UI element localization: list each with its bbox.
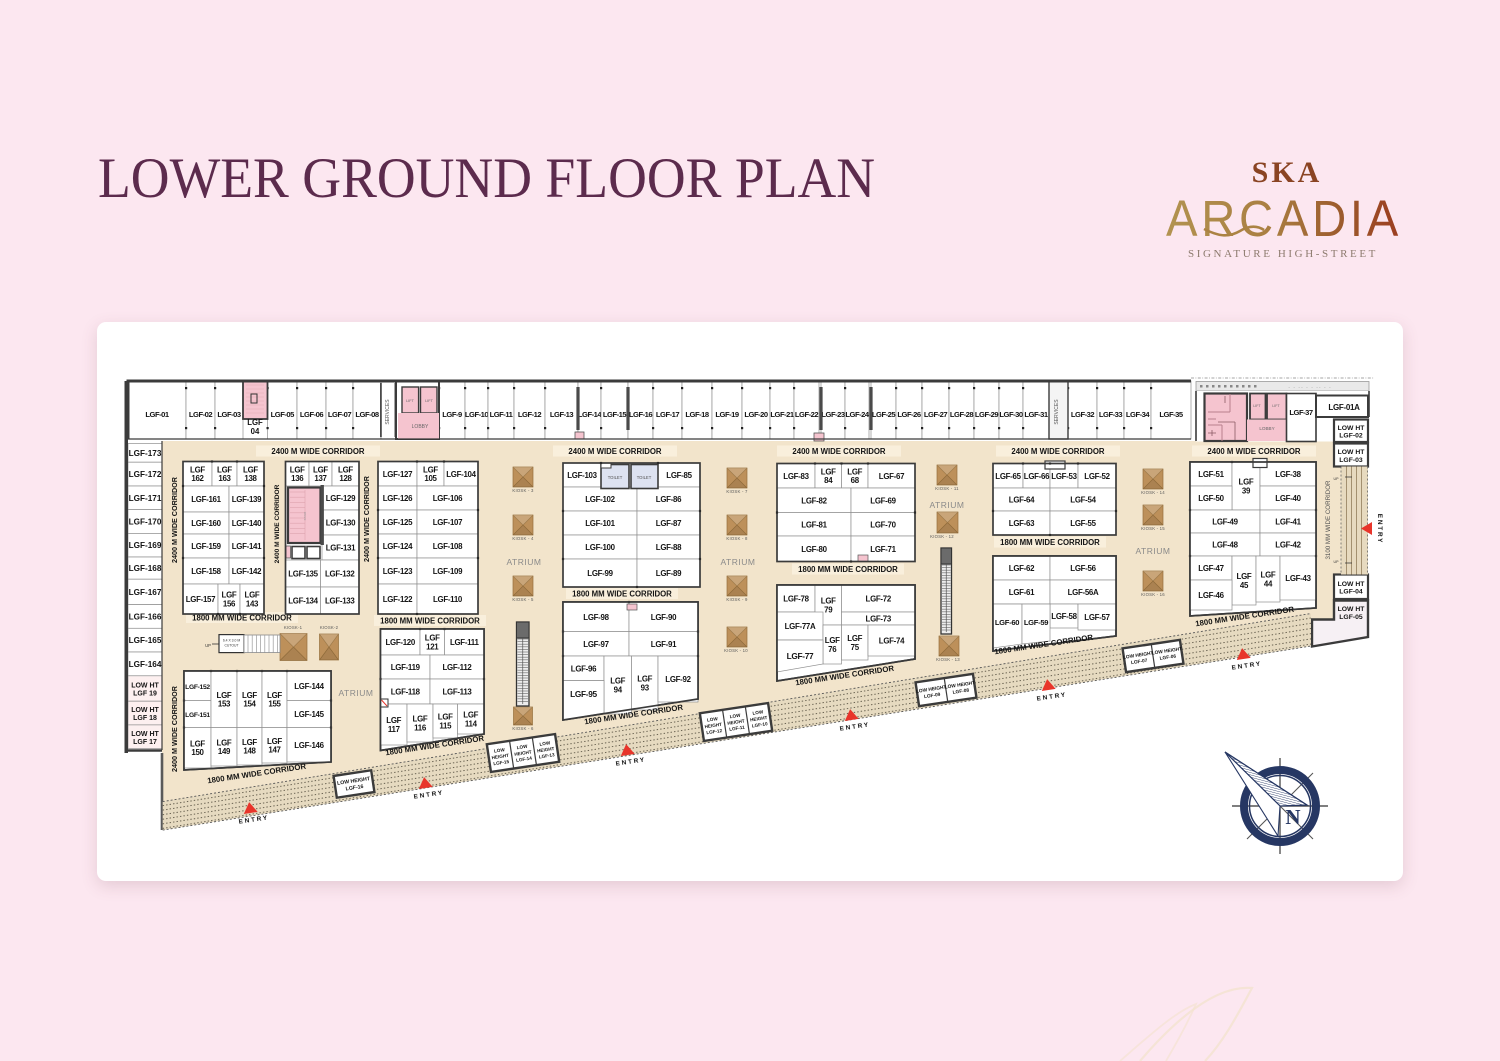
svg-text:LGF-32: LGF-32 bbox=[1071, 410, 1094, 419]
svg-text:136: 136 bbox=[291, 474, 304, 483]
svg-text:LGF-73: LGF-73 bbox=[866, 615, 892, 624]
svg-text:LGF-157: LGF-157 bbox=[186, 595, 216, 604]
svg-text:LGF-171: LGF-171 bbox=[129, 494, 162, 503]
svg-text:ENTRY: ENTRY bbox=[413, 789, 444, 800]
svg-text:LGF: LGF bbox=[847, 467, 862, 476]
svg-text:LGF-03: LGF-03 bbox=[1339, 457, 1363, 464]
svg-text:LGF-151: LGF-151 bbox=[185, 712, 210, 719]
svg-text:LGF: LGF bbox=[338, 465, 353, 474]
svg-text:LGF-60: LGF-60 bbox=[995, 618, 1019, 627]
svg-text:LGF-103: LGF-103 bbox=[567, 471, 597, 480]
svg-text:ATRIUM: ATRIUM bbox=[507, 557, 542, 567]
svg-text:LGF-9: LGF-9 bbox=[442, 410, 462, 419]
svg-text:LGF-97: LGF-97 bbox=[583, 640, 609, 649]
svg-text:LGF-51: LGF-51 bbox=[1198, 470, 1224, 479]
svg-text:LGF-135: LGF-135 bbox=[288, 570, 318, 579]
svg-text:LGF-141: LGF-141 bbox=[232, 542, 262, 551]
svg-text:LGF-06: LGF-06 bbox=[300, 410, 323, 419]
svg-text:LGF-24: LGF-24 bbox=[845, 410, 869, 419]
svg-text:UP: UP bbox=[1334, 477, 1340, 481]
svg-text:2400 M WIDE CORRIDOR: 2400 M WIDE CORRIDOR bbox=[170, 476, 179, 563]
svg-text:LGF-152: LGF-152 bbox=[185, 684, 210, 691]
svg-text:LGF-04: LGF-04 bbox=[1339, 589, 1363, 596]
svg-text:LIFT: LIFT bbox=[425, 399, 433, 403]
svg-text:76: 76 bbox=[828, 645, 837, 654]
svg-text:LGF-67: LGF-67 bbox=[879, 472, 905, 481]
svg-text:LGF-43: LGF-43 bbox=[1285, 574, 1311, 583]
svg-text:LGF-89: LGF-89 bbox=[656, 569, 682, 578]
svg-text:LGF-63: LGF-63 bbox=[1009, 519, 1035, 528]
svg-text:LOW HT: LOW HT bbox=[131, 683, 159, 690]
svg-text:LGF: LGF bbox=[425, 634, 440, 643]
svg-text:LGF-166: LGF-166 bbox=[129, 612, 162, 621]
svg-text:137: 137 bbox=[314, 474, 327, 483]
svg-text:2400 M WIDE CORRIDOR: 2400 M WIDE CORRIDOR bbox=[362, 475, 371, 562]
svg-text:LGF-123: LGF-123 bbox=[383, 567, 413, 576]
svg-text:ENTRY: ENTRY bbox=[839, 721, 870, 732]
svg-text:LGF 17: LGF 17 bbox=[133, 739, 157, 746]
svg-text:LGF-40: LGF-40 bbox=[1275, 494, 1301, 503]
svg-text:LGF-10: LGF-10 bbox=[465, 410, 488, 419]
svg-text:LGF-164: LGF-164 bbox=[129, 660, 162, 669]
svg-text:LOW HT: LOW HT bbox=[1338, 449, 1366, 456]
svg-text:LGF-170: LGF-170 bbox=[129, 518, 162, 527]
svg-text:ATRIUM: ATRIUM bbox=[930, 500, 965, 510]
svg-text:LGF-08: LGF-08 bbox=[355, 410, 378, 419]
svg-text:LGF-122: LGF-122 bbox=[383, 595, 413, 604]
svg-text:04: 04 bbox=[251, 427, 260, 436]
svg-text:LGF-11: LGF-11 bbox=[490, 410, 514, 419]
svg-text:LGF-134: LGF-134 bbox=[288, 597, 318, 606]
svg-text:2400 M WIDE CORRIDOR: 2400 M WIDE CORRIDOR bbox=[271, 447, 365, 456]
svg-text:LGF-42: LGF-42 bbox=[1275, 541, 1301, 550]
svg-text:LGF-16: LGF-16 bbox=[629, 410, 652, 419]
svg-text:LGF-132: LGF-132 bbox=[325, 570, 355, 579]
svg-text:KIOSK - 6: KIOSK - 6 bbox=[512, 726, 534, 731]
svg-text:LGF-77: LGF-77 bbox=[787, 651, 814, 661]
svg-text:LGF-52: LGF-52 bbox=[1084, 472, 1110, 481]
svg-text:LGF: LGF bbox=[217, 738, 232, 747]
svg-text:LGF-172: LGF-172 bbox=[129, 470, 162, 479]
svg-text:LGF-146: LGF-146 bbox=[294, 741, 324, 750]
svg-text:121: 121 bbox=[426, 642, 439, 651]
svg-text:KIOSK - 3: KIOSK - 3 bbox=[512, 488, 534, 493]
svg-text:LGF 19: LGF 19 bbox=[133, 691, 157, 698]
svg-text:156: 156 bbox=[223, 599, 236, 608]
svg-text:LGF-46: LGF-46 bbox=[1198, 591, 1224, 600]
svg-text:LGF: LGF bbox=[610, 677, 625, 686]
svg-text:LGF-144: LGF-144 bbox=[294, 682, 324, 691]
svg-text:UP: UP bbox=[205, 643, 211, 648]
svg-text:LGF-110: LGF-110 bbox=[433, 595, 463, 604]
svg-text:KIOSK - 12: KIOSK - 12 bbox=[930, 534, 954, 539]
svg-text:LGF-61: LGF-61 bbox=[1009, 588, 1035, 597]
svg-text:KIOSK - 9: KIOSK - 9 bbox=[726, 597, 748, 602]
svg-text:LGF-74: LGF-74 bbox=[879, 637, 905, 646]
svg-text:ATRIUM: ATRIUM bbox=[339, 688, 374, 698]
svg-text:LGF: LGF bbox=[438, 713, 453, 722]
svg-text:LGF-26: LGF-26 bbox=[897, 410, 920, 419]
svg-text:LGF-129: LGF-129 bbox=[326, 494, 356, 503]
svg-text:KIOSK - 15: KIOSK - 15 bbox=[1141, 526, 1165, 531]
svg-text:LGF-98: LGF-98 bbox=[583, 613, 609, 622]
svg-text:LGF-92: LGF-92 bbox=[665, 675, 691, 684]
svg-text:LIFT: LIFT bbox=[1253, 404, 1261, 408]
svg-text:LGF: LGF bbox=[1239, 478, 1254, 487]
svg-text:147: 147 bbox=[268, 746, 281, 755]
svg-text:LGF: LGF bbox=[242, 691, 257, 700]
svg-text:2400 M WIDE CORRIDOR: 2400 M WIDE CORRIDOR bbox=[792, 447, 886, 456]
svg-text:STAIR: STAIR bbox=[303, 511, 307, 520]
svg-text:LGF-81: LGF-81 bbox=[801, 520, 827, 529]
svg-text:44: 44 bbox=[1264, 579, 1273, 588]
svg-text:LGF-112: LGF-112 bbox=[442, 663, 472, 672]
svg-text:LGF-82: LGF-82 bbox=[801, 496, 827, 505]
svg-text:LGF-34: LGF-34 bbox=[1126, 410, 1150, 419]
svg-text:LGF-23: LGF-23 bbox=[821, 410, 844, 419]
svg-text:KIOSK - 8: KIOSK - 8 bbox=[726, 536, 748, 541]
svg-text:ENTRY: ENTRY bbox=[1376, 514, 1383, 544]
svg-text:LGF-160: LGF-160 bbox=[191, 519, 221, 528]
svg-text:LGF-86: LGF-86 bbox=[656, 495, 682, 504]
svg-text:LGF-50: LGF-50 bbox=[1198, 494, 1224, 503]
svg-text:LOW HT: LOW HT bbox=[1338, 425, 1366, 432]
svg-text:LGF-37: LGF-37 bbox=[1289, 408, 1312, 417]
svg-text:LGF: LGF bbox=[825, 636, 840, 645]
svg-text:LGF-47: LGF-47 bbox=[1198, 564, 1224, 573]
svg-text:LGF-70: LGF-70 bbox=[870, 520, 896, 529]
svg-text:LIFT: LIFT bbox=[406, 399, 414, 403]
svg-text:LGF-158: LGF-158 bbox=[191, 567, 221, 576]
svg-text:128: 128 bbox=[339, 474, 352, 483]
svg-text:39: 39 bbox=[1242, 486, 1251, 495]
svg-text:LGF-62: LGF-62 bbox=[1009, 564, 1035, 573]
svg-text:94: 94 bbox=[614, 685, 623, 694]
svg-text:LGF-03: LGF-03 bbox=[217, 410, 240, 419]
svg-text:KIOSK - 10: KIOSK - 10 bbox=[724, 648, 748, 653]
svg-text:LGF-168: LGF-168 bbox=[129, 564, 162, 573]
svg-text:LGF-35: LGF-35 bbox=[1159, 410, 1183, 419]
svg-text:LGF-53: LGF-53 bbox=[1051, 472, 1077, 481]
svg-text:93: 93 bbox=[641, 683, 650, 692]
svg-text:LGF-83: LGF-83 bbox=[783, 472, 809, 481]
svg-text:LGF-140: LGF-140 bbox=[232, 519, 262, 528]
svg-text:LGF: LGF bbox=[190, 739, 205, 748]
svg-text:143: 143 bbox=[246, 599, 259, 608]
svg-text:CUTOUT: CUTOUT bbox=[224, 644, 238, 648]
svg-text:LGF: LGF bbox=[245, 591, 260, 600]
svg-text:LGF-41: LGF-41 bbox=[1275, 518, 1301, 527]
svg-text:LGF-02: LGF-02 bbox=[189, 410, 212, 419]
svg-text:LGF-30: LGF-30 bbox=[999, 410, 1022, 419]
svg-text:114: 114 bbox=[465, 719, 478, 728]
svg-text:LIFT: LIFT bbox=[1272, 404, 1280, 408]
svg-text:LGF: LGF bbox=[637, 675, 652, 684]
svg-text:LGF-139: LGF-139 bbox=[232, 495, 262, 504]
svg-text:LGF-119: LGF-119 bbox=[391, 663, 421, 672]
svg-text:LGF-28: LGF-28 bbox=[950, 410, 973, 419]
svg-text:116: 116 bbox=[414, 723, 427, 732]
svg-text:LGF: LGF bbox=[313, 465, 328, 474]
svg-text:6.4 X 3.0 M: 6.4 X 3.0 M bbox=[223, 639, 241, 643]
svg-text:LGF-57: LGF-57 bbox=[1084, 613, 1110, 622]
svg-text:LOBBY: LOBBY bbox=[1259, 426, 1274, 431]
svg-text:KIOSK - 14: KIOSK - 14 bbox=[1141, 490, 1165, 495]
svg-text:LGF-120: LGF-120 bbox=[386, 638, 416, 647]
svg-text:LGF-101: LGF-101 bbox=[585, 519, 615, 528]
svg-text:ENTRY: ENTRY bbox=[1036, 691, 1067, 702]
svg-text:LGF: LGF bbox=[386, 716, 401, 725]
svg-text:LGF-99: LGF-99 bbox=[587, 569, 613, 578]
svg-text:LGF: LGF bbox=[821, 597, 836, 606]
svg-text:SERVICES: SERVICES bbox=[385, 399, 391, 425]
svg-text:SERVICES: SERVICES bbox=[1054, 399, 1060, 425]
svg-text:75: 75 bbox=[851, 643, 860, 652]
svg-text:2400 M WIDE CORRIDOR: 2400 M WIDE CORRIDOR bbox=[170, 685, 179, 772]
svg-text:LGF-80: LGF-80 bbox=[801, 545, 827, 554]
svg-text:1800 MM WIDE CORRIDOR: 1800 MM WIDE CORRIDOR bbox=[1000, 538, 1100, 547]
svg-text:1800 MM WIDE CORRIDOR: 1800 MM WIDE CORRIDOR bbox=[572, 590, 672, 599]
svg-text:LGF: LGF bbox=[423, 465, 438, 474]
svg-text:LGF-78: LGF-78 bbox=[783, 595, 809, 604]
svg-text:KIOSK - 13: KIOSK - 13 bbox=[936, 657, 960, 662]
svg-text:150: 150 bbox=[191, 748, 204, 757]
svg-text:LOW HT: LOW HT bbox=[131, 707, 159, 714]
svg-text:LGF-165: LGF-165 bbox=[129, 636, 162, 645]
svg-text:LGF-108: LGF-108 bbox=[433, 542, 463, 551]
svg-text:LGF-19: LGF-19 bbox=[715, 410, 738, 419]
svg-text:LGF-100: LGF-100 bbox=[585, 543, 615, 552]
svg-text:LGF-107: LGF-107 bbox=[433, 518, 463, 527]
svg-text:LGF-58: LGF-58 bbox=[1051, 612, 1077, 621]
svg-text:LGF-118: LGF-118 bbox=[391, 688, 421, 697]
svg-text:LGF: LGF bbox=[247, 418, 263, 427]
svg-text:LGF-72: LGF-72 bbox=[866, 595, 892, 604]
svg-text:LGF: LGF bbox=[190, 465, 205, 474]
svg-text:45: 45 bbox=[1240, 581, 1249, 590]
svg-text:KIOSK-2: KIOSK-2 bbox=[320, 625, 339, 630]
svg-text:LGF-167: LGF-167 bbox=[129, 588, 162, 597]
svg-text:2400 M WIDE CORRIDOR: 2400 M WIDE CORRIDOR bbox=[568, 447, 662, 456]
svg-text:LGF-85: LGF-85 bbox=[666, 471, 692, 480]
svg-text:ATRIUM: ATRIUM bbox=[721, 557, 756, 567]
svg-text:LOW HT: LOW HT bbox=[131, 731, 159, 738]
svg-text:LGF: LGF bbox=[243, 465, 258, 474]
svg-text:LGF-69: LGF-69 bbox=[870, 496, 896, 505]
svg-text:LGF: LGF bbox=[847, 634, 862, 643]
svg-text:- - -- - - -- - -: - - -- - - -- - - bbox=[1288, 385, 1331, 391]
svg-text:162: 162 bbox=[191, 474, 204, 483]
svg-text:LGF-91: LGF-91 bbox=[651, 640, 677, 649]
svg-text:LGF-104: LGF-104 bbox=[446, 470, 476, 479]
svg-text:163: 163 bbox=[218, 474, 231, 483]
svg-text:ATRIUM: ATRIUM bbox=[1136, 546, 1171, 556]
svg-text:LGF-71: LGF-71 bbox=[870, 545, 896, 554]
svg-text:LGF-22: LGF-22 bbox=[795, 410, 818, 419]
svg-text:LGF-102: LGF-102 bbox=[585, 495, 615, 504]
svg-text:KIOSK-1: KIOSK-1 bbox=[284, 625, 303, 630]
svg-text:LGF-02: LGF-02 bbox=[1339, 433, 1363, 440]
svg-text:TOILET: TOILET bbox=[608, 475, 623, 480]
svg-text:84: 84 bbox=[824, 476, 833, 485]
svg-text:LGF-54: LGF-54 bbox=[1070, 496, 1096, 505]
svg-text:LGF: LGF bbox=[413, 715, 428, 724]
svg-text:LGF-48: LGF-48 bbox=[1212, 541, 1238, 550]
svg-text:LGF 18: LGF 18 bbox=[133, 715, 157, 722]
svg-text:LGF-142: LGF-142 bbox=[232, 567, 262, 576]
svg-text:ENTRY: ENTRY bbox=[1231, 660, 1262, 671]
svg-text:LGF: LGF bbox=[267, 737, 282, 746]
svg-text:LGF: LGF bbox=[1261, 571, 1276, 580]
svg-text:LOW HT: LOW HT bbox=[1338, 606, 1366, 613]
svg-text:LGF-145: LGF-145 bbox=[294, 710, 324, 719]
svg-text:138: 138 bbox=[244, 474, 257, 483]
svg-text:LGF-77A: LGF-77A bbox=[785, 622, 816, 631]
svg-text:LGF-21: LGF-21 bbox=[770, 410, 794, 419]
svg-text:105: 105 bbox=[424, 474, 437, 483]
svg-text:LGF: LGF bbox=[290, 465, 305, 474]
svg-text:LGF-113: LGF-113 bbox=[442, 688, 472, 697]
svg-text:LGF-125: LGF-125 bbox=[383, 518, 413, 527]
svg-text:149: 149 bbox=[218, 747, 231, 756]
svg-text:LGF-25: LGF-25 bbox=[872, 410, 896, 419]
svg-text:LGF-131: LGF-131 bbox=[326, 544, 356, 553]
svg-text:LGF-127: LGF-127 bbox=[383, 470, 413, 479]
svg-text:LGF-133: LGF-133 bbox=[325, 597, 355, 606]
svg-text:LGF-169: LGF-169 bbox=[129, 541, 162, 550]
svg-text:79: 79 bbox=[824, 605, 833, 614]
svg-text:LGF-07: LGF-07 bbox=[328, 410, 351, 419]
svg-text:LGF: LGF bbox=[242, 738, 257, 747]
svg-text:LGF-66: LGF-66 bbox=[1024, 472, 1050, 481]
svg-text:LGF-17: LGF-17 bbox=[656, 410, 679, 419]
svg-text:LGF-95: LGF-95 bbox=[570, 689, 597, 699]
svg-text:ENTRY: ENTRY bbox=[615, 756, 646, 767]
svg-text:LGF-01A: LGF-01A bbox=[1328, 403, 1360, 412]
svg-text:LGF-59: LGF-59 bbox=[1024, 618, 1048, 627]
svg-text:LGF-29: LGF-29 bbox=[975, 410, 998, 419]
svg-text:LGF: LGF bbox=[222, 591, 237, 600]
svg-text:148: 148 bbox=[243, 747, 256, 756]
svg-text:LGF-96: LGF-96 bbox=[571, 664, 597, 673]
svg-text:LGF: LGF bbox=[463, 711, 478, 720]
svg-text:153: 153 bbox=[218, 700, 231, 709]
svg-text:LGF: LGF bbox=[217, 465, 232, 474]
svg-text:LGF-124: LGF-124 bbox=[383, 542, 413, 551]
svg-text:115: 115 bbox=[439, 721, 452, 730]
svg-text:LGF: LGF bbox=[267, 691, 282, 700]
svg-text:2400 M WIDE CORRIDOR: 2400 M WIDE CORRIDOR bbox=[274, 484, 281, 563]
svg-text:LGF-01: LGF-01 bbox=[145, 410, 169, 419]
svg-text:LGF-20: LGF-20 bbox=[744, 410, 767, 419]
svg-text:LGF-130: LGF-130 bbox=[326, 519, 356, 528]
svg-text:LGF-90: LGF-90 bbox=[651, 613, 677, 622]
svg-text:LGF-161: LGF-161 bbox=[191, 495, 221, 504]
svg-text:2400 M WIDE CORRIDOR: 2400 M WIDE CORRIDOR bbox=[1011, 447, 1105, 456]
svg-text:LGF-56: LGF-56 bbox=[1070, 564, 1096, 573]
svg-text:1800 MM WIDE CORRIDOR: 1800 MM WIDE CORRIDOR bbox=[798, 565, 898, 574]
svg-text:N: N bbox=[1285, 805, 1300, 829]
svg-text:LGF-106: LGF-106 bbox=[433, 494, 463, 503]
svg-text:68: 68 bbox=[851, 476, 860, 485]
svg-text:LGF-13: LGF-13 bbox=[550, 410, 573, 419]
svg-text:KIOSK - 4: KIOSK - 4 bbox=[512, 536, 534, 541]
svg-text:LGF-15: LGF-15 bbox=[603, 410, 627, 419]
svg-text:KIOSK - 5: KIOSK - 5 bbox=[512, 597, 534, 602]
svg-text:2400 M WIDE CORRIDOR: 2400 M WIDE CORRIDOR bbox=[1207, 447, 1301, 456]
svg-text:LGF-64: LGF-64 bbox=[1009, 496, 1035, 505]
svg-text:LGF-126: LGF-126 bbox=[383, 494, 413, 503]
svg-text:KIOSK - 7: KIOSK - 7 bbox=[726, 489, 748, 494]
svg-text:UP: UP bbox=[1334, 560, 1340, 564]
svg-text:LOBBY: LOBBY bbox=[412, 424, 429, 430]
svg-text:LGF-111: LGF-111 bbox=[450, 638, 480, 647]
svg-text:LGF-38: LGF-38 bbox=[1275, 470, 1301, 479]
svg-text:LGF: LGF bbox=[821, 467, 836, 476]
svg-text:LGF-14: LGF-14 bbox=[578, 410, 602, 419]
svg-text:154: 154 bbox=[243, 700, 256, 709]
svg-text:LGF-65: LGF-65 bbox=[995, 472, 1021, 481]
svg-text:KIOSK - 11: KIOSK - 11 bbox=[935, 486, 959, 491]
svg-text:LGF-87: LGF-87 bbox=[656, 519, 682, 528]
svg-text:LGF-31: LGF-31 bbox=[1024, 410, 1048, 419]
svg-text:LOW HT: LOW HT bbox=[1338, 581, 1366, 588]
svg-text:LGF: LGF bbox=[217, 691, 232, 700]
svg-text:LGF-109: LGF-109 bbox=[433, 567, 463, 576]
svg-text:LGF-88: LGF-88 bbox=[656, 543, 682, 552]
svg-text:LGF-55: LGF-55 bbox=[1070, 519, 1096, 528]
svg-text:KIOSK - 16: KIOSK - 16 bbox=[1141, 592, 1165, 597]
svg-text:155: 155 bbox=[268, 700, 281, 709]
svg-text:LGF-173: LGF-173 bbox=[129, 449, 162, 458]
svg-text:TOILET: TOILET bbox=[637, 475, 652, 480]
svg-text:LGF-159: LGF-159 bbox=[191, 542, 221, 551]
svg-text:LGF-18: LGF-18 bbox=[685, 410, 708, 419]
svg-text:LGF-05: LGF-05 bbox=[271, 410, 295, 419]
svg-text:LGF-05: LGF-05 bbox=[1339, 614, 1363, 621]
svg-text:LGF-33: LGF-33 bbox=[1099, 410, 1122, 419]
svg-text:1800 MM WIDE CORRIDOR: 1800 MM WIDE CORRIDOR bbox=[380, 617, 480, 626]
svg-text:117: 117 bbox=[388, 725, 401, 734]
svg-text:LGF-27: LGF-27 bbox=[924, 410, 947, 419]
svg-text:3100 MM WIDE CORRIDOR: 3100 MM WIDE CORRIDOR bbox=[1325, 480, 1332, 560]
svg-text:LGF: LGF bbox=[1237, 572, 1252, 581]
svg-text:LGF-49: LGF-49 bbox=[1212, 518, 1238, 527]
svg-text:LGF-56A: LGF-56A bbox=[1068, 588, 1099, 597]
svg-text:LGF-12: LGF-12 bbox=[518, 410, 541, 419]
